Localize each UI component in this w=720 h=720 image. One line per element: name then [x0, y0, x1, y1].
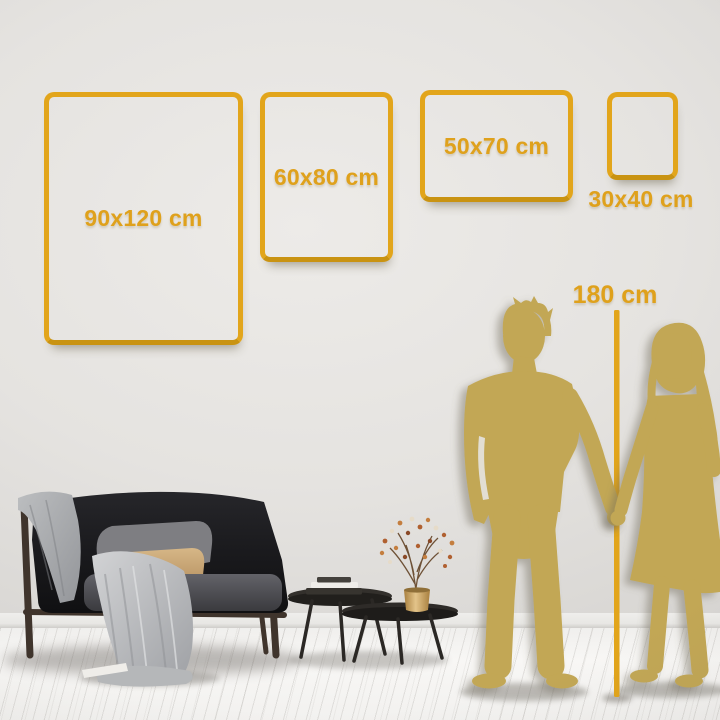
- sofa-rear-leg: [262, 618, 266, 652]
- height-ruler-label: 180 cm: [565, 281, 665, 310]
- size-label-60x80: 60x80 cm: [274, 164, 379, 191]
- man-right-foot: [546, 674, 578, 689]
- woman-silhouette: [611, 323, 720, 688]
- size-frame-90x120: 90x120 cm: [44, 92, 243, 345]
- vase-rim: [404, 587, 430, 592]
- man-right-arm: [570, 396, 613, 508]
- size-frame-60x80: 60x80 cm: [260, 92, 393, 262]
- size-label-50x70: 50x70 cm: [444, 133, 549, 160]
- man-right-leg: [541, 518, 551, 666]
- table-right-rim: [342, 607, 458, 621]
- woman-head: [656, 333, 692, 379]
- woman-left-leg: [655, 584, 662, 666]
- man-head: [503, 309, 545, 363]
- size-guide-image: 90x120 cm 60x80 cm 50x70 cm 30x40 cm 180…: [0, 0, 720, 720]
- woman-right-foot: [675, 675, 703, 688]
- man-silhouette: [464, 296, 625, 689]
- size-frame-50x70: 50x70 cm: [420, 90, 573, 202]
- size-label-90x120: 90x120 cm: [84, 205, 202, 232]
- size-frame-30x40: [607, 92, 678, 180]
- table-right-leg: [430, 615, 442, 658]
- woman-right-leg: [692, 588, 700, 670]
- sofa-left-post: [24, 506, 30, 655]
- branch-stems: [390, 533, 442, 590]
- coffee-tables: [288, 577, 458, 663]
- table-left-leg: [301, 601, 312, 657]
- man-left-leg: [498, 518, 507, 666]
- woman-hand: [611, 511, 626, 526]
- books-stack: [306, 577, 362, 595]
- man-left-foot: [472, 674, 506, 689]
- gold-vase: [404, 590, 430, 612]
- branch-flowers: [380, 517, 455, 568]
- woman-left-foot: [630, 670, 658, 683]
- size-label-30x40: 30x40 cm: [581, 186, 701, 213]
